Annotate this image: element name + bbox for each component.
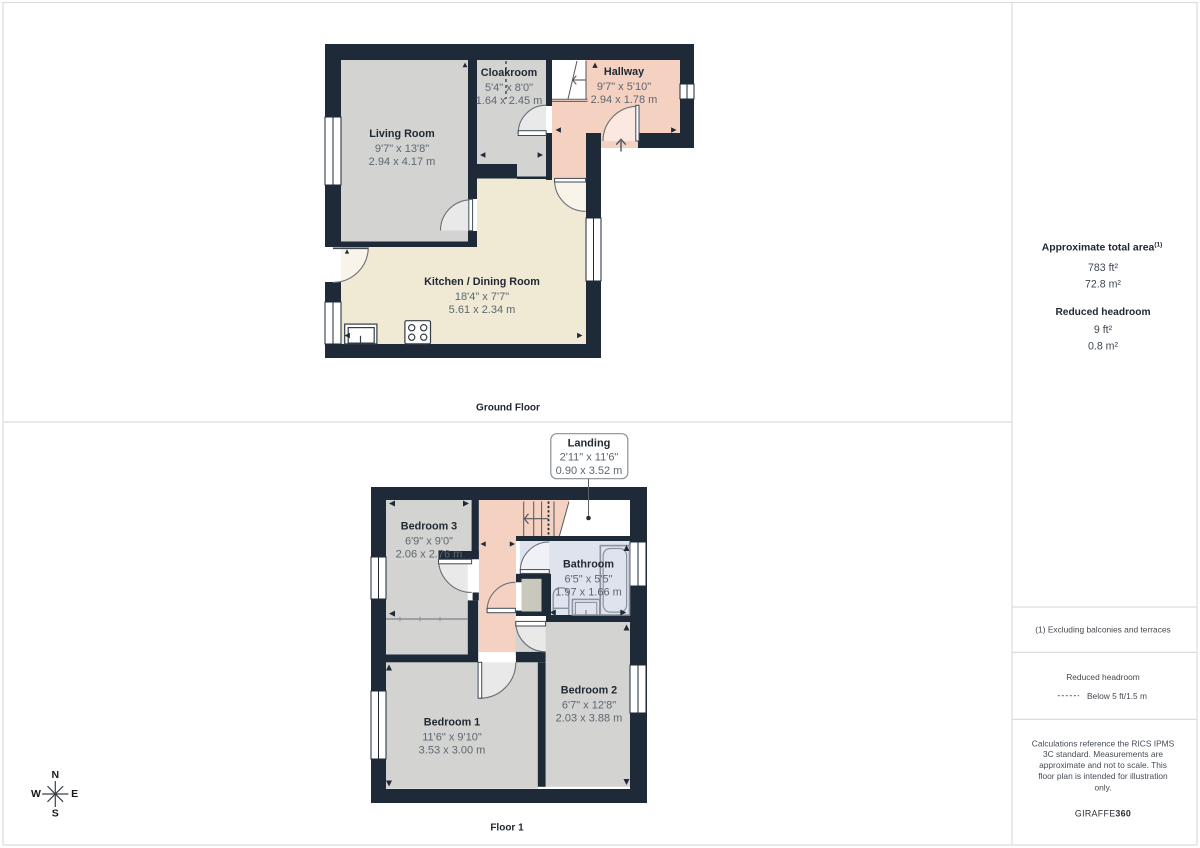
svg-text:GIRAFFE360: GIRAFFE360: [1075, 809, 1131, 819]
svg-text:3.53 x 3.00 m: 3.53 x 3.00 m: [419, 745, 486, 757]
svg-text:18'4" x 7'7": 18'4" x 7'7": [455, 291, 509, 303]
svg-text:2.06 x 2.76 m: 2.06 x 2.76 m: [396, 549, 463, 561]
svg-text:Kitchen / Dining Room: Kitchen / Dining Room: [424, 276, 540, 288]
svg-text:6'9" x 9'0": 6'9" x 9'0": [405, 536, 453, 548]
svg-text:Reduced headroom: Reduced headroom: [1055, 307, 1150, 318]
svg-text:5.61 x 2.34 m: 5.61 x 2.34 m: [449, 304, 516, 316]
svg-text:floor plan is intended for ill: floor plan is intended for illustration: [1038, 771, 1168, 781]
svg-text:9 ft²: 9 ft²: [1094, 324, 1113, 336]
svg-text:2.94 x 1.78 m: 2.94 x 1.78 m: [591, 94, 658, 106]
svg-text:6'7" x 12'8": 6'7" x 12'8": [562, 700, 616, 712]
svg-text:Bathroom: Bathroom: [563, 559, 614, 571]
svg-text:0.90 x 3.52 m: 0.90 x 3.52 m: [556, 465, 623, 477]
svg-text:Bedroom 1: Bedroom 1: [424, 717, 480, 729]
svg-text:2'11" x 11'6": 2'11" x 11'6": [560, 452, 619, 464]
svg-text:2.94 x 4.17 m: 2.94 x 4.17 m: [369, 156, 436, 168]
svg-text:Bedroom 3: Bedroom 3: [401, 521, 457, 533]
svg-text:(1) Excluding balconies and te: (1) Excluding balconies and terraces: [1035, 625, 1170, 635]
svg-text:Bedroom 2: Bedroom 2: [561, 685, 617, 697]
svg-text:Calculations reference the RIC: Calculations reference the RICS IPMS: [1032, 739, 1175, 749]
svg-text:5'4" x 8'0": 5'4" x 8'0": [485, 82, 533, 94]
svg-text:2.03 x 3.88 m: 2.03 x 3.88 m: [556, 713, 623, 725]
svg-text:9'7" x 13'8": 9'7" x 13'8": [375, 143, 429, 155]
svg-text:Cloakroom: Cloakroom: [481, 67, 537, 79]
svg-text:Landing: Landing: [568, 438, 611, 450]
svg-text:Ground Floor: Ground Floor: [476, 403, 540, 414]
svg-text:72.8 m²: 72.8 m²: [1085, 279, 1121, 291]
svg-text:783 ft²: 783 ft²: [1088, 262, 1119, 274]
svg-text:Approximate total area(1): Approximate total area(1): [1042, 241, 1163, 254]
svg-text:only.: only.: [1094, 783, 1111, 793]
svg-text:W: W: [31, 788, 41, 800]
svg-text:9'7" x 5'10": 9'7" x 5'10": [597, 81, 651, 93]
svg-text:0.8 m²: 0.8 m²: [1088, 341, 1118, 353]
svg-text:N: N: [52, 769, 60, 781]
svg-text:approximate and not to scale.: approximate and not to scale. This: [1039, 760, 1167, 770]
svg-text:1.64 x 2.45 m: 1.64 x 2.45 m: [476, 95, 543, 107]
svg-text:11'6" x 9'10": 11'6" x 9'10": [422, 732, 482, 744]
svg-text:Living Room: Living Room: [369, 128, 434, 140]
svg-text:Floor 1: Floor 1: [490, 823, 524, 834]
svg-text:6'5" x 5'5": 6'5" x 5'5": [564, 574, 612, 586]
svg-text:S: S: [52, 808, 59, 820]
svg-text:Reduced headroom: Reduced headroom: [1066, 672, 1140, 682]
svg-text:1.97 x 1.66 m: 1.97 x 1.66 m: [555, 587, 622, 599]
svg-text:3C standard. Measurements are: 3C standard. Measurements are: [1043, 749, 1163, 759]
svg-text:Hallway: Hallway: [604, 66, 644, 78]
svg-text:E: E: [71, 788, 78, 800]
svg-text:Below 5 ft/1.5 m: Below 5 ft/1.5 m: [1087, 691, 1147, 701]
